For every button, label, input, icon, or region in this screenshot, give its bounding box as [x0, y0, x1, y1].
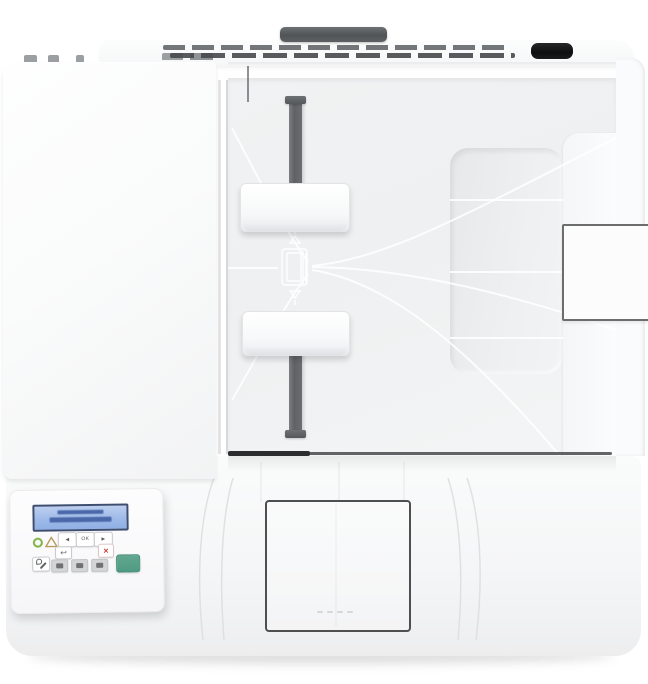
hinge-tab: [48, 55, 59, 62]
vent-grille-row: [170, 53, 515, 58]
vent-grille-row: [163, 45, 507, 50]
lcd-line-2: [50, 517, 112, 523]
paper-stop-flag: [562, 224, 648, 321]
scanner-lid: [3, 62, 216, 479]
cancel-button: ×: [98, 544, 114, 558]
rear-port: [531, 43, 573, 59]
printer-product-photo: ◄ OK ► ↩ ×: [0, 0, 648, 684]
hinge-tab: [24, 55, 37, 62]
paper-guide-lower: [242, 311, 350, 356]
grip-dot: [327, 611, 333, 613]
copy-option-icon: [96, 563, 103, 568]
lcd-line-1: [57, 510, 103, 515]
lid-handle-bar: [280, 27, 387, 42]
copy-option-icon: [56, 563, 63, 568]
start-copy-button: [116, 554, 140, 572]
copy-option-icon: [76, 563, 83, 568]
setup-button: [32, 557, 50, 572]
lcd-display: [32, 503, 128, 531]
grip-dot: [317, 611, 323, 613]
ready-led-icon: [33, 538, 43, 548]
copy-option-button: [71, 559, 88, 572]
ok-button: OK: [76, 532, 95, 547]
wrench-icon: [36, 559, 47, 570]
guide-lip: [246, 348, 346, 355]
grip-dot: [337, 611, 343, 613]
copy-option-button: [91, 559, 108, 572]
control-panel: ◄ OK ► ↩ ×: [9, 488, 165, 614]
copy-option-button: [51, 559, 68, 572]
lcd-text-lines: [34, 505, 126, 522]
embossed-tray-lines: [228, 62, 616, 456]
hinge-tab: [76, 55, 84, 62]
guide-lip: [244, 224, 346, 231]
back-button: ↩: [55, 546, 72, 559]
panel-seam: [218, 80, 221, 454]
left-arrow-button: ◄: [58, 532, 77, 547]
paper-guide-upper: [240, 183, 350, 232]
grip-dot: [347, 611, 353, 613]
